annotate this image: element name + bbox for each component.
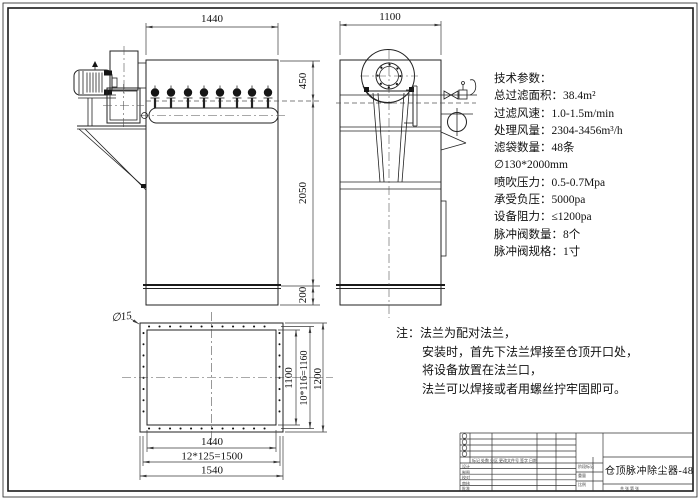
dim-front-width: 1440: [201, 13, 224, 25]
dim-body-height: 2050: [297, 182, 309, 205]
titleblock-row-label: 审核: [462, 482, 470, 486]
note-prefix: 注：: [396, 326, 420, 340]
dim-plan-inner-w: 1440: [201, 436, 224, 448]
dim-skirt: 200: [297, 286, 309, 303]
air-valve-assembly: [441, 80, 477, 150]
titleblock-middle-label: 阶段标记: [578, 465, 594, 469]
note-line: 将设备放置在法兰口，: [396, 361, 638, 380]
pulse-valves: [151, 86, 273, 109]
front-view-dimensions: [146, 23, 320, 305]
titleblock-row-label: 校对: [462, 476, 470, 480]
titleblock-middle-label: 比例: [578, 483, 586, 487]
fan-stand: [373, 93, 409, 182]
titleblock-header-row: 标记 处数 分区 更改文件号 签字 日期: [472, 459, 537, 463]
tech-param-line: 处理风量：2304-3456m³/h: [494, 123, 699, 140]
fan-motor: [74, 61, 117, 98]
revision-mark-icon: [462, 446, 467, 451]
dimension-labels: 1440 1100 450 2050 200 1440 12*125=1500 …: [111, 11, 402, 477]
support-bracket: [77, 98, 146, 190]
drawing-title: 仓顶脉冲除尘器-48: [605, 462, 692, 477]
engineering-drawing-sheet: 1440 1100 450 2050 200 1440 12*125=1500 …: [0, 0, 700, 500]
dim-plan-inner-h: 1100: [283, 367, 295, 389]
tech-param-line: 过滤风速：1.0-1.5m/min: [494, 106, 699, 123]
note-line: 安装时，首先下法兰焊接至仓顶开口处，: [396, 343, 638, 362]
pipe-hook: [470, 80, 476, 95]
dim-hole-diameter: ∅15: [111, 310, 134, 325]
revision-mark-icon: [462, 434, 467, 439]
tech-param-line: 总过滤面积：38.4m²: [494, 88, 699, 105]
tech-param-line: 承受负压：5000pa: [494, 192, 699, 209]
front-view: [74, 23, 320, 305]
note-line: 注：法兰为配对法兰，: [396, 324, 638, 343]
notes-block: 注：法兰为配对法兰， 安装时，首先下法兰焊接至仓顶开口处， 将设备放置在法兰口，…: [396, 324, 638, 398]
note-line: 法兰可以焊接或者用螺丝拧牢固即可。: [396, 380, 638, 399]
tech-param-line: 喷吹压力：0.5-0.7Mpa: [494, 175, 699, 192]
tech-params-heading: 技术参数：: [494, 71, 699, 88]
side-view: [336, 21, 477, 318]
air-manifold-tank: [140, 108, 287, 123]
titleblock-middle-label: 重量: [578, 474, 586, 478]
dim-plan-outer-w: 1540: [201, 465, 224, 477]
titleblock-sheet-label: 共 张 第 张: [620, 487, 639, 491]
tech-param-line: 脉冲阀规格：1寸: [494, 244, 699, 261]
dim-top-section: 450: [297, 72, 309, 89]
revision-mark-icon: [462, 452, 467, 457]
dim-plan-bolt-w: 12*125=1500: [181, 451, 243, 463]
lifting-eye-icon: [92, 61, 98, 67]
titleblock-row-label: 设计: [462, 465, 470, 469]
dim-plan-outer-h: 1200: [312, 368, 324, 391]
access-panel: [441, 201, 446, 256]
dim-side-width: 1100: [379, 11, 401, 23]
tech-param-line: 滤袋数量：48条: [494, 140, 699, 157]
titleblock-row-label: 制图: [462, 471, 470, 475]
titleblock-row-label: 批准: [462, 487, 470, 491]
tech-params-block: 技术参数： 总过滤面积：38.4m² 过滤风速：1.0-1.5m/min 处理风…: [494, 71, 699, 261]
dim-plan-bolt-h: 10*116=1160: [299, 351, 310, 406]
revision-mark-icon: [462, 440, 467, 445]
tech-param-line: ∅130*2000mm: [494, 157, 699, 174]
tech-param-line: 设备阻力：≤1200pa: [494, 209, 699, 226]
tech-param-line: 脉冲阀数量：8个: [494, 227, 699, 244]
